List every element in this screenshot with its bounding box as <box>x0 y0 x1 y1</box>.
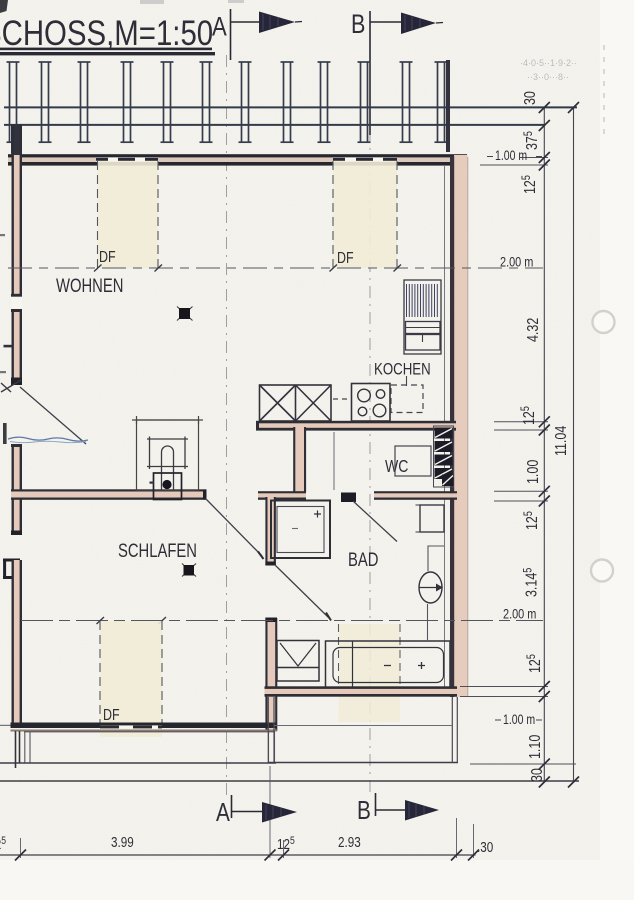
svg-text:··3··0···8··: ··3··0···8·· <box>527 72 569 82</box>
svg-text:SCHLAFEN: SCHLAFEN <box>118 540 197 561</box>
svg-text:·4·0·5··1·9·2··: ·4·0·5··1·9·2·· <box>520 58 577 68</box>
svg-text:1.00 m: 1.00 m <box>503 712 535 728</box>
svg-text:B: B <box>351 10 365 40</box>
svg-text:A: A <box>212 13 227 43</box>
svg-text:1.00 m: 1.00 m <box>495 148 527 164</box>
svg-text:.30: .30 <box>477 839 493 856</box>
svg-text:30: 30 <box>522 91 540 105</box>
svg-text:DF: DF <box>103 707 120 725</box>
svg-text:SCHOSS,M=1:50: SCHOSS,M=1:50 <box>0 14 213 53</box>
svg-text:4.32: 4.32 <box>525 318 543 342</box>
svg-text:2.00 m: 2.00 m <box>500 254 533 270</box>
svg-text:WC: WC <box>385 456 409 476</box>
svg-text:2.93: 2.93 <box>338 834 361 851</box>
svg-text:KOCHEN: KOCHEN <box>374 360 431 379</box>
svg-text:DF: DF <box>99 249 116 267</box>
svg-text:11.04: 11.04 <box>553 426 571 456</box>
svg-text:30: 30 <box>529 768 547 782</box>
svg-text:3.99: 3.99 <box>111 834 134 851</box>
svg-text:2.00 m: 2.00 m <box>503 606 536 622</box>
svg-text:1.10: 1.10 <box>527 735 545 759</box>
svg-text:B: B <box>357 796 371 825</box>
svg-text:A: A <box>216 798 230 827</box>
svg-text:BAD: BAD <box>348 549 378 570</box>
svg-text:WOHNEN: WOHNEN <box>56 275 123 296</box>
svg-text:DF: DF <box>337 250 354 268</box>
svg-text:1.00: 1.00 <box>525 460 543 484</box>
